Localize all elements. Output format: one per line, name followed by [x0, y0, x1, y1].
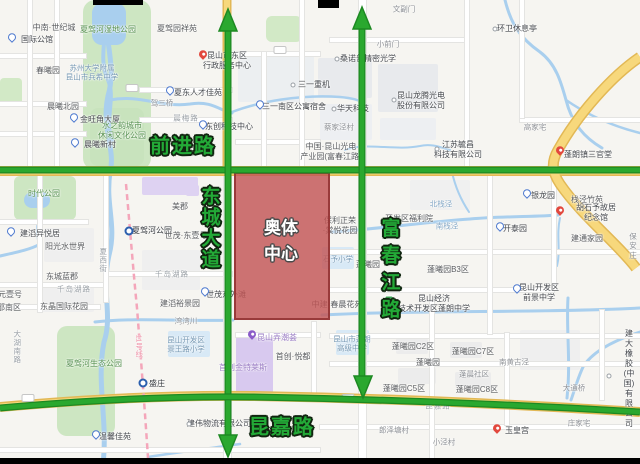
top-edge-artifact	[93, 0, 143, 5]
annotation-label-qianjin-road: 前进路	[150, 130, 216, 159]
annotation-label-kunjia-road: 昆嘉路	[249, 411, 315, 440]
top-edge-artifact	[318, 0, 339, 8]
map-canvas[interactable]: 奥体 中心 前进路 东城大道 富春江路 昆嘉路 中南·世纪城国际公馆夏驾河湿地公…	[0, 0, 640, 464]
bottom-edge-bar	[0, 458, 640, 464]
annotation-label-fuchunjiang-road: 富春江路	[376, 218, 403, 326]
annotation-label-dongcheng-avenue: 东城大道	[196, 186, 223, 270]
route-annotation-layer	[0, 0, 640, 464]
